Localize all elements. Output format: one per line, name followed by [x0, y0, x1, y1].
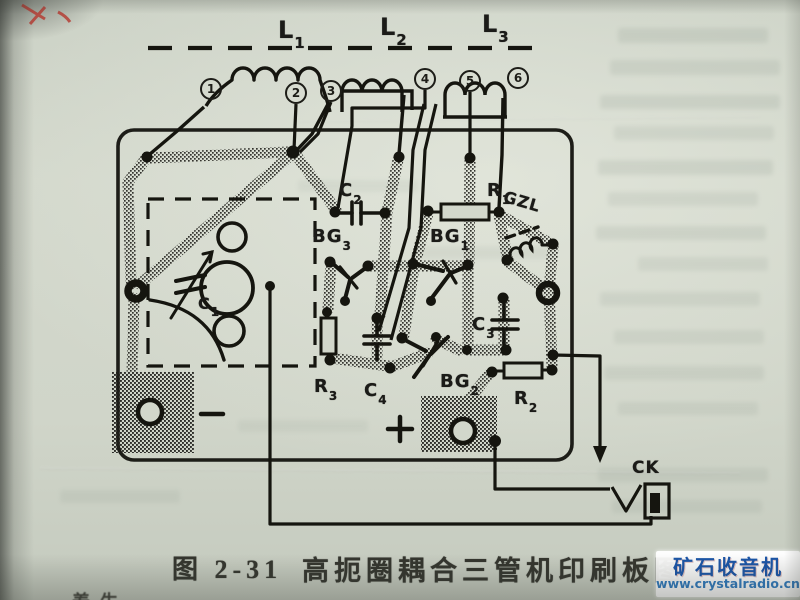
label-c3: C3 [472, 316, 496, 337]
tuning-capacitor-footprint [148, 199, 315, 366]
label-r2: R2 [514, 390, 538, 411]
ring-pad [128, 283, 144, 299]
top-edge-shadow [0, 0, 800, 14]
label-ck: CK [632, 460, 660, 477]
pcb-diagram-drawing [0, 0, 800, 600]
book-page-photo: 1 2 3 4 5 6 L1 L2 L3 C1 C2 C3 C4 R1 R2 R… [0, 0, 800, 600]
resistor-r2-symbol [492, 363, 552, 378]
resistor-r1-symbol [429, 204, 498, 220]
page-gutter-shadow [0, 0, 34, 600]
label-c2: C2 [339, 182, 363, 203]
terminal-1: 1 [200, 78, 222, 100]
transistor-bg3-symbol [332, 263, 367, 299]
battery-pad-negative [112, 372, 194, 453]
label-l3: L3 [482, 12, 510, 41]
label-bg1: BG1 [430, 228, 470, 249]
terminal-2: 2 [285, 82, 307, 104]
label-c1: C1 [198, 296, 220, 315]
terminal-4: 4 [414, 68, 436, 90]
right-edge-shadow [784, 0, 800, 600]
wire-arrowhead [593, 446, 607, 463]
coil-l1 [150, 68, 330, 154]
pcb-figure: 1 2 3 4 5 6 L1 L2 L3 C1 C2 C3 C4 R1 R2 R… [0, 0, 800, 600]
terminal-3: 3 [320, 80, 342, 102]
resistor-r3-symbol [321, 311, 336, 359]
label-bg2: BG2 [440, 373, 480, 394]
battery-pad-positive [421, 396, 497, 452]
terminal-6: 6 [507, 67, 529, 89]
polarity-marks [201, 414, 412, 441]
bottom-edge-shadow [0, 554, 800, 600]
label-l1: L1 [278, 18, 306, 47]
label-l2: L2 [380, 15, 408, 44]
label-bg3: BG3 [312, 228, 352, 249]
label-r3: R3 [314, 378, 338, 399]
terminal-5: 5 [459, 70, 481, 92]
earphone-jack [645, 484, 669, 518]
label-c4: C4 [364, 382, 388, 403]
